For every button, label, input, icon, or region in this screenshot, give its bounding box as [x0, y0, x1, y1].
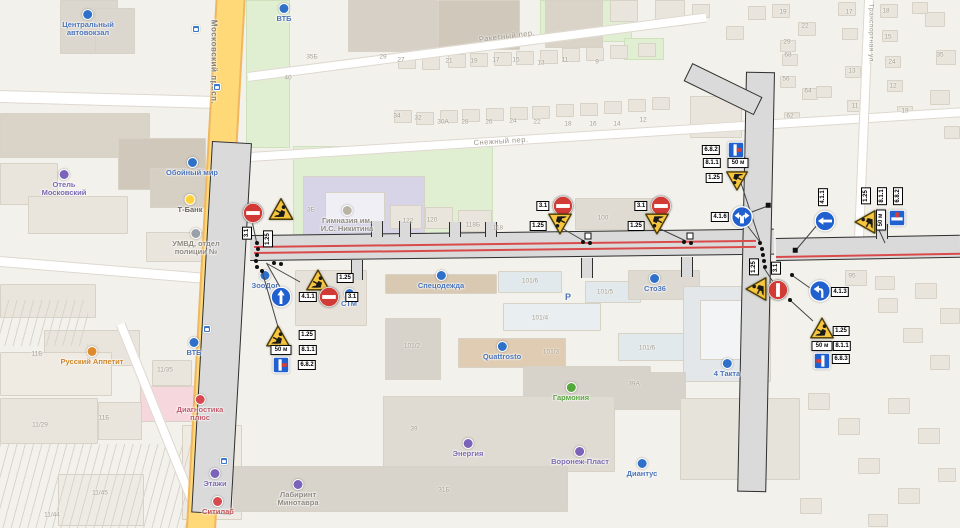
- building: [940, 308, 960, 324]
- house-number: 101/6: [639, 345, 655, 352]
- sign-roadworks: [745, 277, 768, 302]
- poi[interactable]: Обойный мир: [166, 157, 218, 177]
- house-number: 22: [533, 119, 540, 126]
- building: [620, 372, 686, 410]
- building: [532, 106, 550, 119]
- poi[interactable]: Энергия: [453, 438, 484, 458]
- poi-icon[interactable]: [342, 205, 353, 216]
- poi-label[interactable]: Центральныйавтовокзал: [62, 21, 114, 37]
- building: [875, 276, 895, 290]
- house-number: 15: [512, 57, 519, 64]
- barrier-dot: [788, 298, 792, 302]
- poi-icon[interactable]: [187, 157, 198, 168]
- barrier-dot: [689, 241, 693, 245]
- poi-icon[interactable]: [293, 479, 304, 490]
- house-number: 24: [888, 59, 895, 66]
- house-number: 35: [936, 52, 943, 59]
- house-number: 18: [564, 121, 571, 128]
- sign-dead-end-left: [814, 353, 831, 370]
- anchor-square: [766, 203, 771, 208]
- poi-label[interactable]: ОтельМосковский: [42, 181, 87, 197]
- house-number: 34: [393, 113, 400, 120]
- poi-label[interactable]: УМВД, отделполиции №: [172, 240, 219, 256]
- building: [348, 0, 438, 52]
- bus-stop-icon[interactable]: [192, 25, 200, 33]
- barrier-dot: [256, 247, 260, 251]
- poi-label[interactable]: Обойный мир: [166, 169, 218, 177]
- poi-label[interactable]: Русский Аппетит: [61, 358, 124, 366]
- poi-icon[interactable]: [191, 228, 202, 239]
- poi-icon[interactable]: [87, 346, 98, 357]
- barrier-dot: [254, 259, 258, 263]
- poi-label[interactable]: Диантус: [627, 470, 658, 478]
- building: [915, 283, 937, 299]
- house-number: 16: [589, 121, 596, 128]
- sign-dead-end-right: [728, 142, 745, 159]
- building: [938, 468, 956, 482]
- poi-label-line: ВТБ: [276, 15, 291, 23]
- sign-distance-plate: 50 м: [876, 210, 886, 231]
- sign-distance-plate: 50 м: [728, 158, 749, 168]
- sign-roadworks: [726, 171, 749, 192]
- sign-roadworks: [268, 197, 294, 220]
- house-number: 26: [485, 119, 492, 126]
- building: [842, 28, 858, 40]
- poi-icon[interactable]: [636, 458, 647, 469]
- house-number: 101/2: [404, 343, 420, 350]
- house-number: 101/5: [597, 289, 613, 296]
- building: [903, 328, 923, 343]
- building: [808, 393, 830, 410]
- sign-code-label: 3.1: [536, 201, 549, 211]
- house-number: 12: [639, 117, 646, 124]
- sign-no-entry: [768, 280, 789, 301]
- bus-stop-icon[interactable]: [203, 325, 211, 333]
- sign-code-label: 1.25: [337, 273, 354, 283]
- sign-code-label: 4.1.3: [831, 287, 849, 297]
- house-number: 11/44: [44, 512, 60, 519]
- house-number: 11: [562, 57, 569, 64]
- sign-code-label: 1.25: [299, 330, 316, 340]
- barrier-dot: [279, 262, 283, 266]
- barrier-dot: [763, 265, 767, 269]
- house-number: 40: [284, 75, 291, 82]
- parking-mark: Р: [565, 292, 571, 302]
- building: [898, 488, 920, 504]
- poi[interactable]: Гармония: [553, 382, 589, 402]
- poi-label[interactable]: ВТБ: [186, 349, 201, 357]
- house-number: 95: [848, 273, 855, 280]
- sign-roadworks: [810, 317, 835, 340]
- house-number: 3Б: [307, 207, 315, 214]
- barrier-dot: [760, 247, 764, 251]
- poi-label-line: Московский: [42, 189, 87, 197]
- poi-label-line: Этажи: [203, 480, 226, 488]
- poi-icon[interactable]: [497, 341, 508, 352]
- poi-label-line: Ситилаб: [202, 508, 234, 516]
- house-number: 29: [783, 39, 790, 46]
- building: [628, 99, 646, 112]
- poi-label-line: Обойный мир: [166, 169, 218, 177]
- sign-code-label: 8.1.1: [299, 345, 317, 355]
- house-number: 13: [537, 60, 544, 67]
- poi-label[interactable]: Этажи: [203, 480, 226, 488]
- barrier-dot: [758, 241, 762, 245]
- building: [610, 0, 638, 22]
- sign-roadworks: [645, 213, 670, 236]
- house-number: 11Б: [98, 415, 109, 422]
- building: [858, 458, 880, 474]
- poi-label[interactable]: Воронеж-Пласт: [551, 458, 609, 466]
- house-number: 62: [786, 113, 793, 120]
- bus-stop-icon[interactable]: [220, 457, 228, 465]
- house-number: 14: [613, 121, 620, 128]
- poi[interactable]: Ситилаб: [202, 496, 234, 516]
- poi-label-line: Гармония: [553, 394, 589, 402]
- sign-code-label: 1.25: [263, 231, 273, 248]
- sign-code-label: 3.1: [242, 226, 252, 239]
- building: [944, 126, 960, 139]
- street-road: [0, 90, 216, 109]
- sign-left-right: [731, 206, 753, 228]
- poi-label[interactable]: Quattrosto: [483, 353, 521, 361]
- house-number: 120: [427, 217, 438, 224]
- poi-label-line: Минотавра: [278, 499, 319, 507]
- poi[interactable]: Этажи: [203, 468, 226, 488]
- barrier-dot: [255, 265, 259, 269]
- sign-code-label: 8.1.1: [833, 341, 851, 351]
- barrier-square: [585, 233, 592, 240]
- sign-dead-end-right: [273, 357, 290, 374]
- house-number: 39А: [628, 381, 640, 388]
- sign-go-straight: [815, 211, 836, 232]
- poi-icon[interactable]: [185, 194, 196, 205]
- poi-icon[interactable]: [194, 394, 205, 405]
- barrier-square: [687, 233, 694, 240]
- poi-label[interactable]: Спецодежда: [418, 282, 464, 290]
- poi-label-line: Спецодежда: [418, 282, 464, 290]
- house-number: 11: [852, 103, 859, 110]
- poi-label[interactable]: Энергия: [453, 450, 484, 458]
- house-number: 19: [470, 58, 477, 65]
- house-number: 19: [779, 9, 786, 16]
- building: [652, 97, 670, 110]
- house-number: 17: [845, 9, 852, 16]
- sign-code-label: 4.1.1: [299, 292, 317, 302]
- house-number: 11/29: [32, 422, 48, 429]
- sign-distance-plate: 50 м: [271, 345, 292, 355]
- building: [918, 428, 940, 444]
- sign-dead-end-right: [889, 210, 906, 227]
- sign-turn-left: [809, 280, 831, 302]
- sign-roadworks: [266, 325, 291, 348]
- sign-go-straight: [271, 287, 292, 308]
- house-number: 68: [784, 52, 791, 59]
- poi[interactable]: ЛабиринтМинотавра: [278, 479, 319, 507]
- sign-code-label: 6.8.2: [298, 360, 316, 370]
- sign-code-label: 4.1.1: [818, 188, 828, 206]
- building: [726, 26, 744, 40]
- poi[interactable]: ОтельМосковский: [42, 169, 87, 197]
- building: [888, 398, 910, 414]
- house-number: 101/3: [543, 349, 559, 356]
- poi[interactable]: 4 Такта: [714, 358, 740, 378]
- barrier-dot: [255, 241, 259, 245]
- poi-label[interactable]: Гармония: [553, 394, 589, 402]
- sign-no-entry: [319, 287, 340, 308]
- barrier-dot: [762, 259, 766, 263]
- building: [878, 298, 898, 313]
- sign-code-label: 3.1: [345, 292, 358, 302]
- poi[interactable]: Диагностикаплюс: [177, 394, 224, 422]
- house-number: 18: [882, 8, 889, 15]
- poi[interactable]: Воронеж-Пласт: [551, 446, 609, 466]
- building: [556, 104, 574, 117]
- poi-label-line: Диантус: [627, 470, 658, 478]
- poi-label-line: полиции №: [172, 248, 219, 256]
- driveway-stub: [681, 257, 693, 277]
- house-number: 31Б: [438, 487, 450, 494]
- poi-label[interactable]: 4 Такта: [714, 370, 740, 378]
- poi[interactable]: Центральныйавтовокзал: [62, 9, 114, 37]
- poi[interactable]: УМВД, отделполиции №: [172, 228, 219, 256]
- house-number: 56: [782, 76, 789, 83]
- poi[interactable]: Спецодежда: [418, 270, 464, 290]
- barrier-dot: [272, 261, 276, 265]
- poi-icon[interactable]: [721, 358, 732, 369]
- house-number: 28: [461, 119, 468, 126]
- building: [503, 303, 601, 331]
- house-number: 32: [414, 115, 421, 122]
- poi[interactable]: Т-Банк: [178, 194, 203, 214]
- sign-code-label: 3.1: [634, 201, 647, 211]
- poi[interactable]: Диантус: [627, 458, 658, 478]
- poi-icon[interactable]: [209, 468, 220, 479]
- house-number: 11/35: [157, 367, 173, 374]
- poi[interactable]: ВТБ: [186, 337, 201, 357]
- barrier-dot: [255, 253, 259, 257]
- house-number: 22: [801, 23, 808, 30]
- poi-label[interactable]: ВТБ: [276, 15, 291, 23]
- poi-icon[interactable]: [59, 169, 70, 180]
- house-number: 19: [901, 108, 908, 115]
- sign-code-label: 8.1.1: [703, 158, 721, 168]
- poi-label-line: Т-Банк: [178, 206, 203, 214]
- map-canvas[interactable]: Московский просп.Ракетный пер.Снежный пе…: [0, 0, 960, 528]
- house-number: 29: [379, 54, 386, 61]
- poi-label-line: И.С. Никитина: [321, 225, 373, 233]
- barrier-dot: [581, 240, 585, 244]
- sign-code-label: 6.8.2: [893, 187, 903, 205]
- sign-code-label: 1.25: [628, 221, 645, 231]
- house-number: 100: [598, 215, 609, 222]
- building: [800, 498, 822, 514]
- poi-label-line: 4 Такта: [714, 370, 740, 378]
- poi-label-line: Энергия: [453, 450, 484, 458]
- building: [930, 90, 950, 105]
- poi-label[interactable]: Т-Банк: [178, 206, 203, 214]
- building: [0, 398, 98, 444]
- house-number: 12: [889, 83, 896, 90]
- house-number: 27: [397, 57, 404, 64]
- barrier-dot: [260, 269, 264, 273]
- building: [925, 12, 945, 27]
- poi-icon[interactable]: [278, 3, 289, 14]
- building: [610, 45, 628, 59]
- bus-stop-icon[interactable]: [213, 83, 221, 91]
- poi-label[interactable]: Гимназия им.И.С. Никитина: [321, 217, 373, 233]
- building: [816, 86, 832, 98]
- poi-icon[interactable]: [83, 9, 94, 20]
- house-number: 122: [403, 218, 414, 225]
- poi-label-line: Сто36: [644, 285, 666, 293]
- poi-label-line: Воронеж-Пласт: [551, 458, 609, 466]
- house-number: 101/6: [522, 278, 538, 285]
- house-number: 118: [493, 225, 503, 232]
- house-number: 39: [410, 426, 417, 433]
- building: [28, 196, 128, 234]
- house-number: 21: [445, 58, 452, 65]
- poi-icon[interactable]: [212, 496, 223, 507]
- house-number: 15: [884, 34, 891, 41]
- building: [638, 43, 656, 57]
- sign-code-label: 1.25: [530, 221, 547, 231]
- sign-code-label: 6.8.3: [832, 354, 850, 364]
- building: [912, 2, 928, 14]
- barrier-dot: [588, 241, 592, 245]
- poi[interactable]: Quattrosto: [483, 341, 521, 361]
- poi-icon[interactable]: [565, 382, 576, 393]
- house-number: 118Б: [466, 222, 481, 229]
- building: [838, 418, 860, 435]
- house-number: 13: [848, 68, 855, 75]
- sign-code-label: 4.1.6: [711, 212, 729, 222]
- building: [604, 101, 622, 114]
- house-number: 30А: [437, 119, 449, 126]
- sign-code-label: 1.25: [861, 188, 871, 205]
- house-number: 11Б: [31, 351, 42, 358]
- anchor-square: [793, 248, 798, 253]
- building: [580, 103, 598, 116]
- barrier-dot: [682, 240, 686, 244]
- poi-icon[interactable]: [462, 438, 473, 449]
- house-number: 24: [509, 118, 516, 125]
- poi-label-line: Русский Аппетит: [61, 358, 124, 366]
- house-number: 9: [595, 59, 599, 66]
- building: [930, 355, 950, 370]
- building: [748, 6, 766, 20]
- parking-lot: [0, 300, 88, 346]
- sign-roadworks: [854, 210, 877, 235]
- street-label: Снежный пер.: [473, 135, 528, 147]
- poi-icon[interactable]: [575, 446, 586, 457]
- barrier-dot: [761, 253, 765, 257]
- street-road: [250, 107, 960, 162]
- driveway-stub: [449, 222, 461, 237]
- barrier-dot: [790, 273, 794, 277]
- driveway-stub: [581, 258, 593, 278]
- sign-code-label: 8.1.1: [877, 187, 887, 205]
- poi-icon[interactable]: [649, 273, 660, 284]
- building: [868, 514, 888, 527]
- sign-code-label: 1.25: [706, 173, 723, 183]
- sign-no-entry: [243, 203, 264, 224]
- poi[interactable]: Русский Аппетит: [61, 346, 124, 366]
- poi-label[interactable]: Ситилаб: [202, 508, 234, 516]
- sign-code-label: 3.1: [771, 261, 781, 274]
- poi-label[interactable]: ЛабиринтМинотавра: [278, 491, 319, 507]
- street-label: Транспортная ул.: [868, 4, 875, 65]
- poi-label[interactable]: Диагностикаплюс: [177, 406, 224, 422]
- poi[interactable]: Гимназия им.И.С. Никитина: [321, 205, 373, 233]
- house-number: 64: [804, 88, 811, 95]
- poi-icon[interactable]: [435, 270, 446, 281]
- poi[interactable]: ВТБ: [276, 3, 291, 23]
- poi-label-line: плюс: [177, 414, 224, 422]
- house-number: 35Б: [306, 54, 318, 61]
- house-number: 11/45: [92, 490, 108, 497]
- sign-code-label: 1.25: [749, 259, 759, 276]
- sign-code-label: 6.8.2: [702, 145, 720, 155]
- sign-roadworks: [548, 213, 573, 236]
- sign-distance-plate: 50 м: [812, 341, 833, 351]
- sign-code-label: 1.25: [833, 326, 850, 336]
- poi-label-line: ВТБ: [186, 349, 201, 357]
- poi-label[interactable]: Сто36: [644, 285, 666, 293]
- poi[interactable]: Сто36: [644, 273, 666, 293]
- street-label: Московский просп.: [210, 20, 219, 104]
- poi-icon[interactable]: [188, 337, 199, 348]
- poi-label-line: автовокзал: [62, 29, 114, 37]
- house-number: 101/4: [532, 315, 548, 322]
- house-number: 17: [492, 57, 499, 64]
- poi-label-line: Quattrosto: [483, 353, 521, 361]
